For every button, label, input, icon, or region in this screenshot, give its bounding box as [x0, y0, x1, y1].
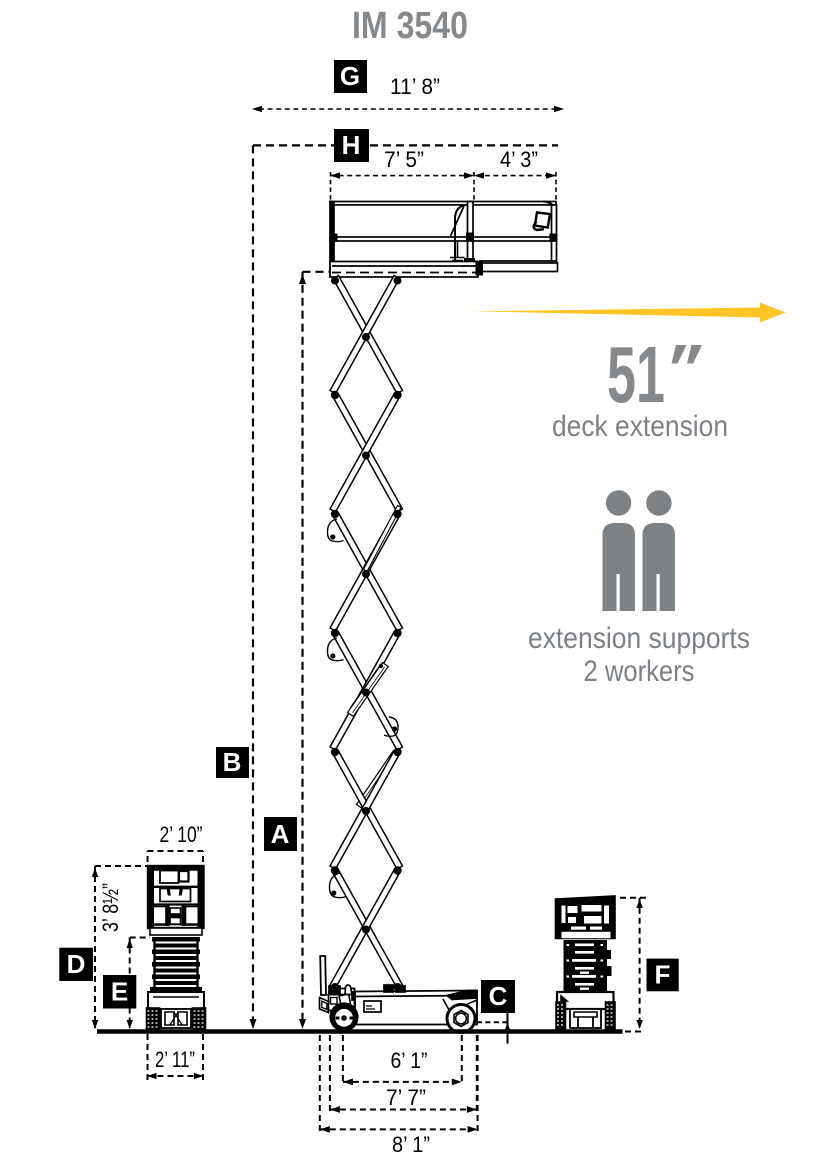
svg-text:IM 3540: IM 3540	[352, 5, 468, 47]
svg-text:2’ 11”: 2’ 11”	[155, 1047, 195, 1072]
svg-text:G: G	[340, 61, 360, 91]
svg-text:F: F	[655, 960, 671, 990]
svg-text:H: H	[342, 130, 361, 160]
svg-text:2’ 10”: 2’ 10”	[160, 822, 203, 847]
svg-text:B: B	[223, 747, 242, 777]
svg-text:7’ 5”: 7’ 5”	[384, 147, 424, 172]
svg-text:extension supports: extension supports	[528, 622, 750, 655]
svg-text:51: 51	[607, 330, 665, 419]
svg-text:A: A	[271, 819, 290, 849]
svg-text:deck extension: deck extension	[552, 410, 728, 443]
svg-text:6’ 1”: 6’ 1”	[391, 1048, 428, 1073]
svg-text:7’ 7”: 7’ 7”	[386, 1085, 426, 1110]
svg-text:D: D	[67, 949, 86, 979]
svg-text:C: C	[489, 981, 508, 1011]
svg-text:11’ 8”: 11’ 8”	[390, 74, 440, 99]
svg-text:E: E	[111, 977, 128, 1007]
svg-text:8’ 1”: 8’ 1”	[392, 1132, 430, 1157]
svg-text:4’ 3”: 4’ 3”	[500, 147, 538, 172]
svg-text:3’ 8½”: 3’ 8½”	[98, 883, 123, 932]
svg-text:2 workers: 2 workers	[584, 655, 695, 688]
